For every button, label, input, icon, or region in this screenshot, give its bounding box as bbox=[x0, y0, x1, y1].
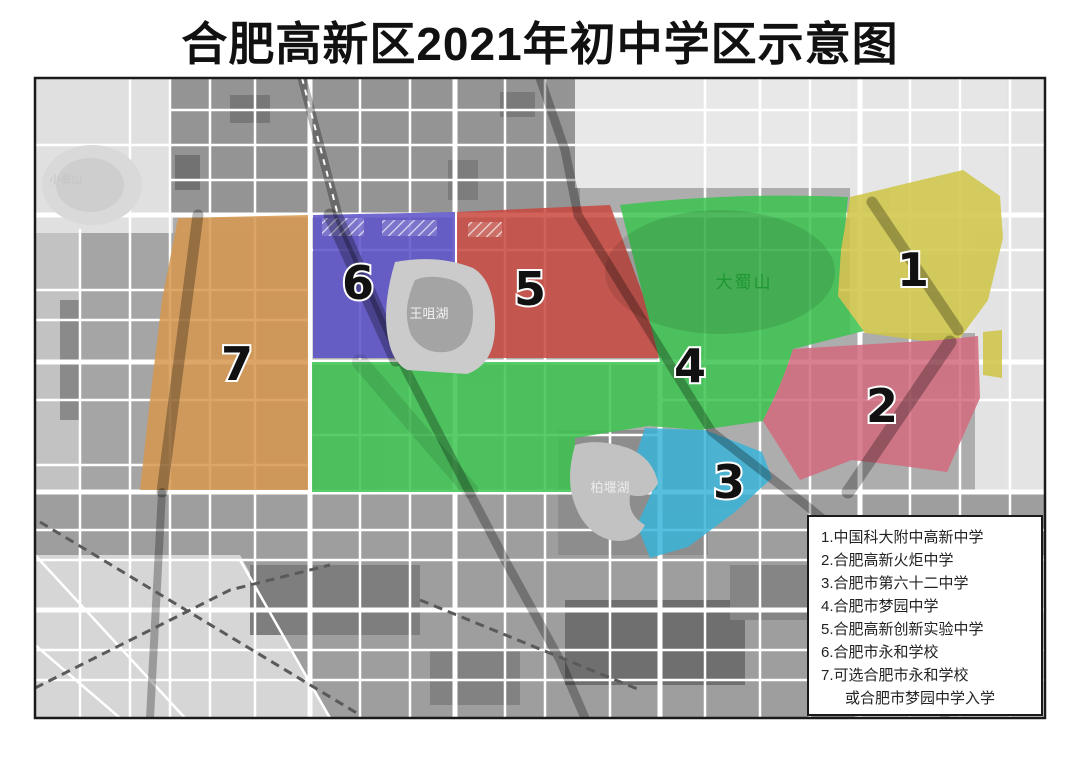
region-4-number: 4 bbox=[674, 339, 706, 393]
region-1-east-patch bbox=[983, 330, 1002, 378]
xiaoshushan-label: 小蜀山 bbox=[50, 173, 83, 186]
region-2-number: 2 bbox=[866, 379, 898, 433]
legend-item-7: 7.可选合肥市永和学校 bbox=[821, 664, 1035, 687]
region-3-number: 3 bbox=[713, 455, 745, 509]
legend-item-5: 5.合肥高新创新实验中学 bbox=[821, 618, 1035, 641]
map-canvas: 1 2 3 4 5 6 7 大蜀山 王咀湖 柏堰湖 小蜀山 bbox=[0, 0, 1080, 763]
legend-item-2: 2.合肥高新火炬中学 bbox=[821, 549, 1035, 572]
school-district-map-page: 合肥高新区2021年初中学区示意图 bbox=[0, 0, 1080, 763]
region-5-number: 5 bbox=[514, 262, 546, 316]
legend-item-4: 4.合肥市梦园中学 bbox=[821, 595, 1035, 618]
legend-box: 1.中国科大附中高新中学 2.合肥高新火炬中学 3.合肥市第六十二中学 4.合肥… bbox=[807, 515, 1043, 716]
legend-item-7-continued: 或合肥市梦园中学入学 bbox=[845, 687, 1035, 710]
legend-item-6: 6.合肥市永和学校 bbox=[821, 641, 1035, 664]
legend-item-3: 3.合肥市第六十二中学 bbox=[821, 572, 1035, 595]
region-1-number: 1 bbox=[897, 243, 929, 297]
wangzuihu-label: 王咀湖 bbox=[409, 307, 448, 322]
region-6-number: 6 bbox=[342, 256, 374, 310]
dashu-mountain-shade bbox=[605, 210, 835, 334]
region-7-number: 7 bbox=[221, 337, 253, 391]
dashushan-label: 大蜀山 bbox=[716, 273, 773, 293]
baiyanhu-label: 柏堰湖 bbox=[590, 481, 629, 496]
legend-item-1: 1.中国科大附中高新中学 bbox=[821, 526, 1035, 549]
